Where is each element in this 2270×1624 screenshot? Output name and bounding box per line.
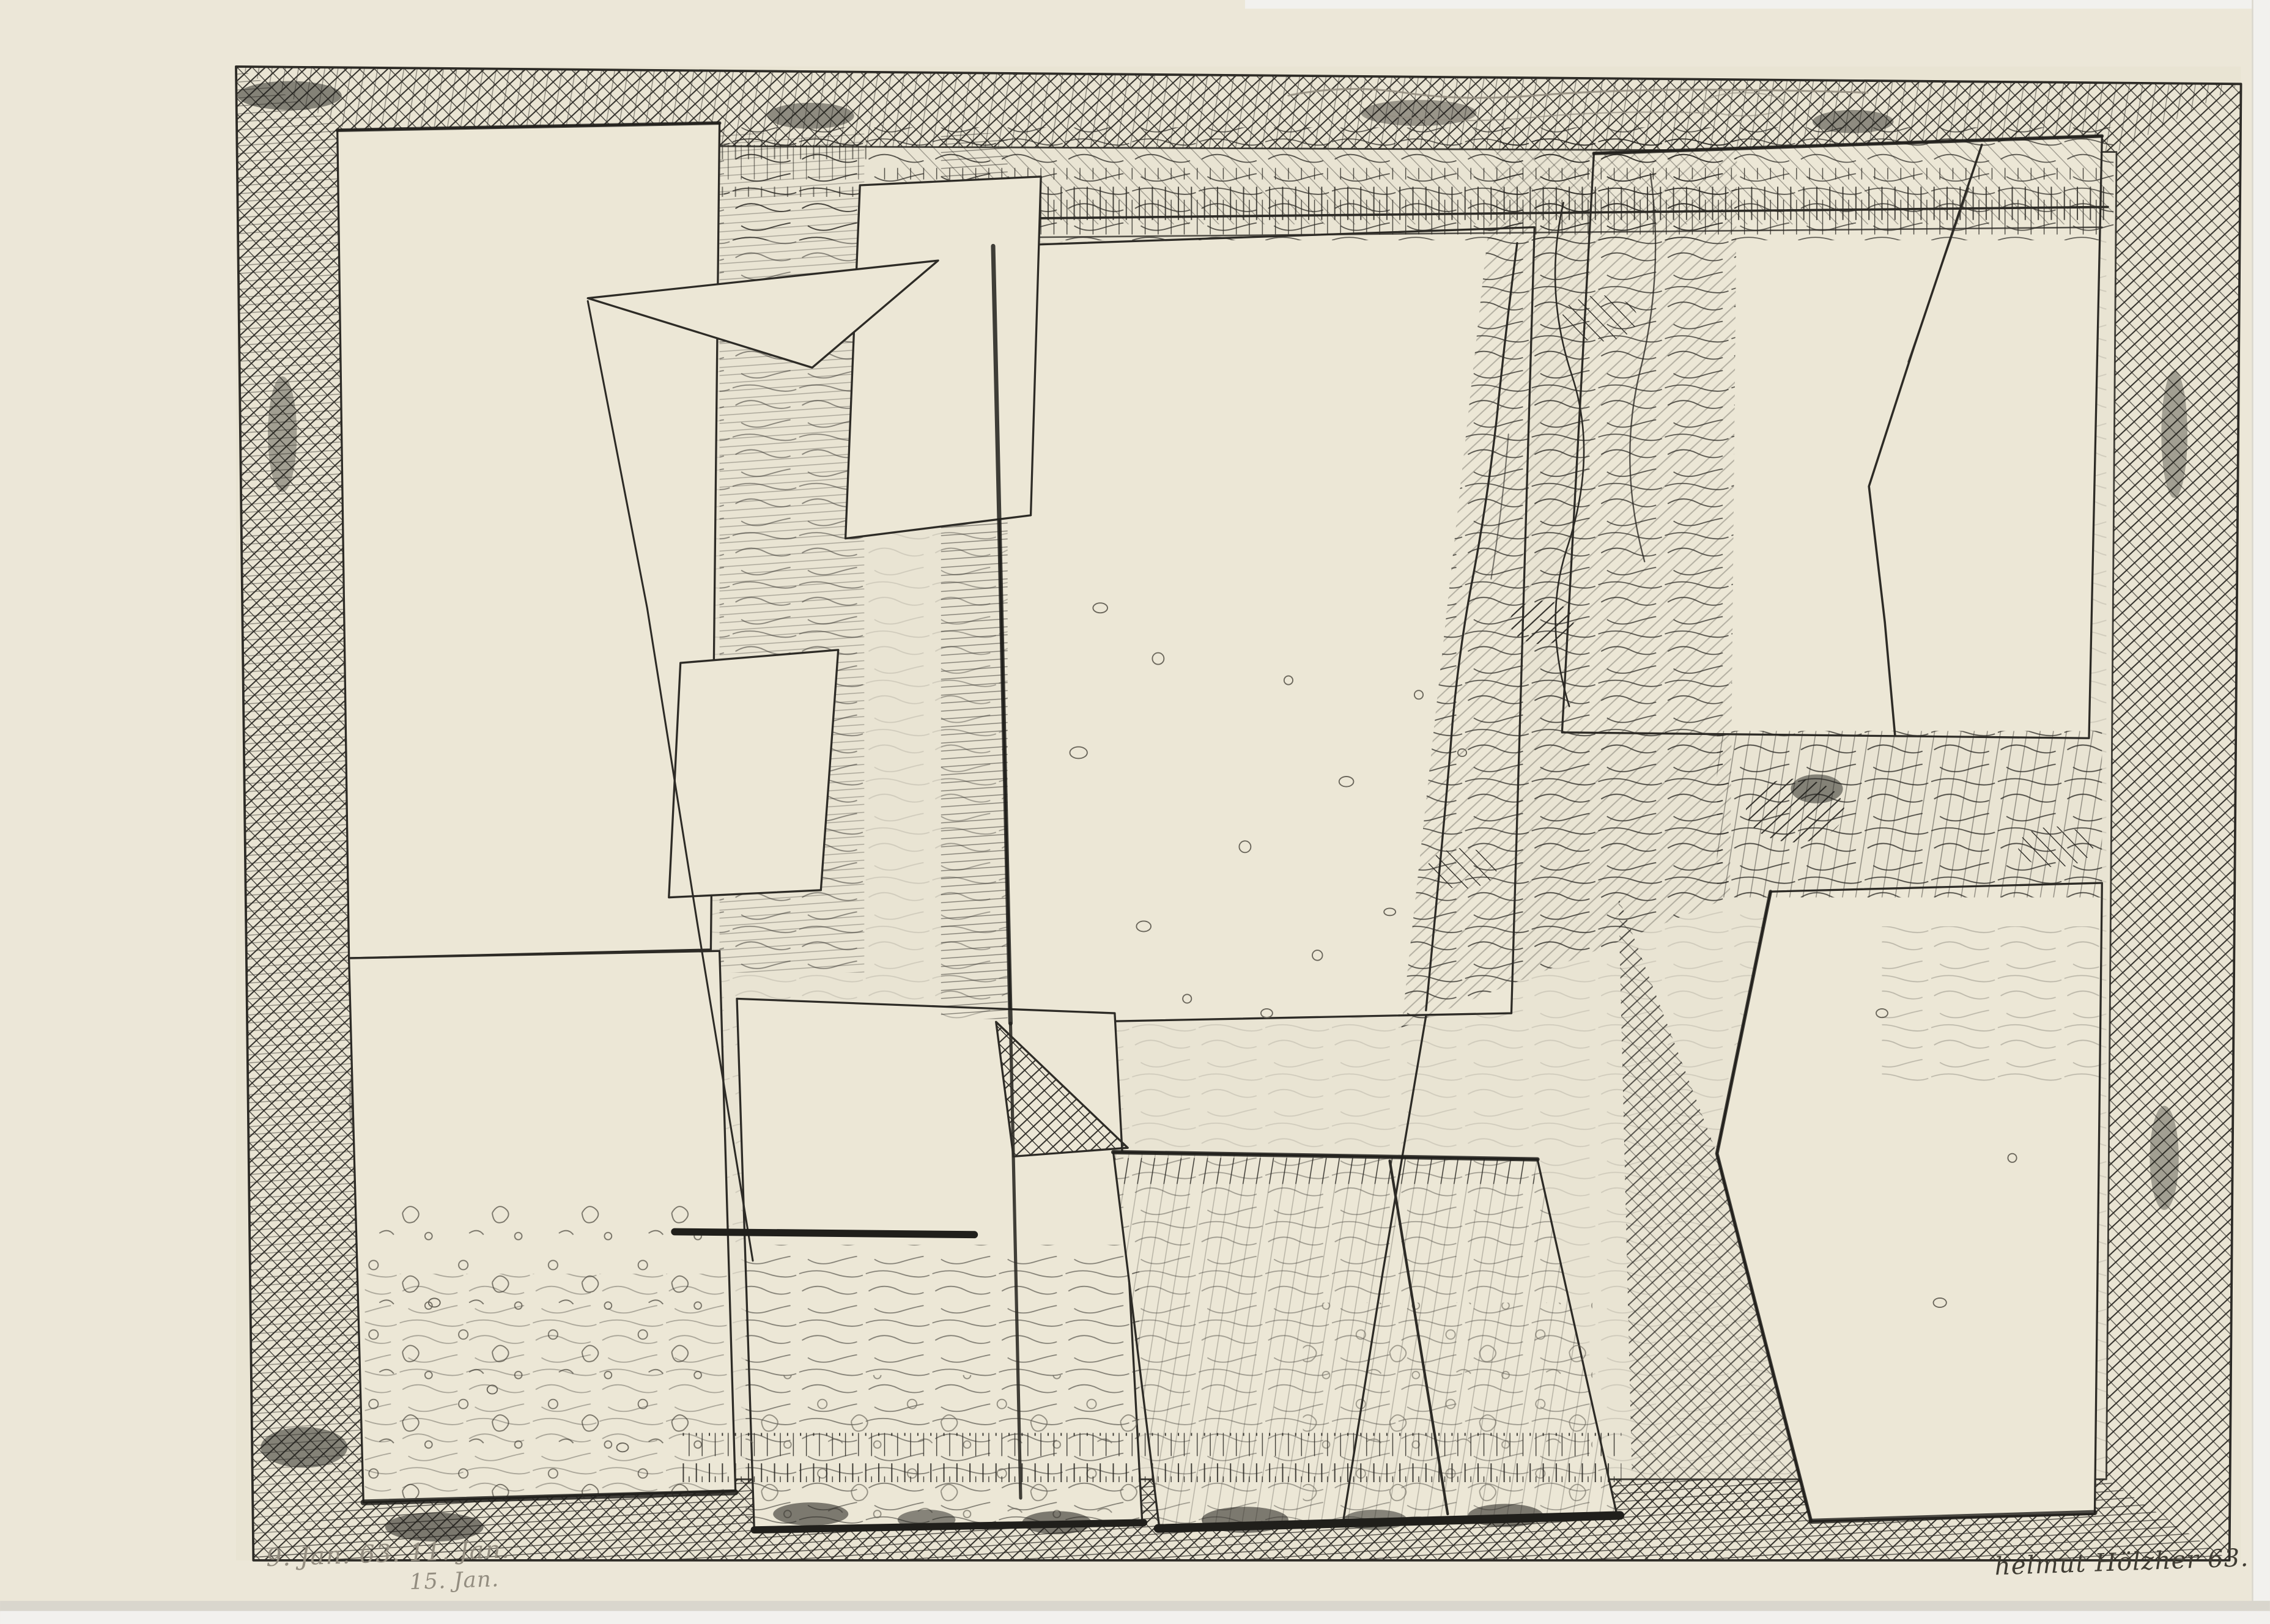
bottom-edge-white: [0, 1611, 2270, 1624]
shard-slanted-panel: [846, 177, 1041, 539]
right-edge-strip: [2252, 0, 2269, 1624]
inscription-date-line2: 15. Jan.: [409, 1567, 500, 1595]
bottom-edge-gray: [0, 1601, 2270, 1612]
artwork-canvas: 9. Jan. 63. 11. Jan. 15. Jan. helmut Höl…: [0, 0, 2270, 1624]
top-edge-strip: [1245, 0, 2270, 9]
panel-top-left: [338, 123, 720, 958]
artwork-scan: 9. Jan. 63. 11. Jan. 15. Jan. helmut Höl…: [0, 0, 2270, 1624]
dark-bar: [675, 1231, 974, 1235]
shard-strip: [669, 650, 838, 898]
